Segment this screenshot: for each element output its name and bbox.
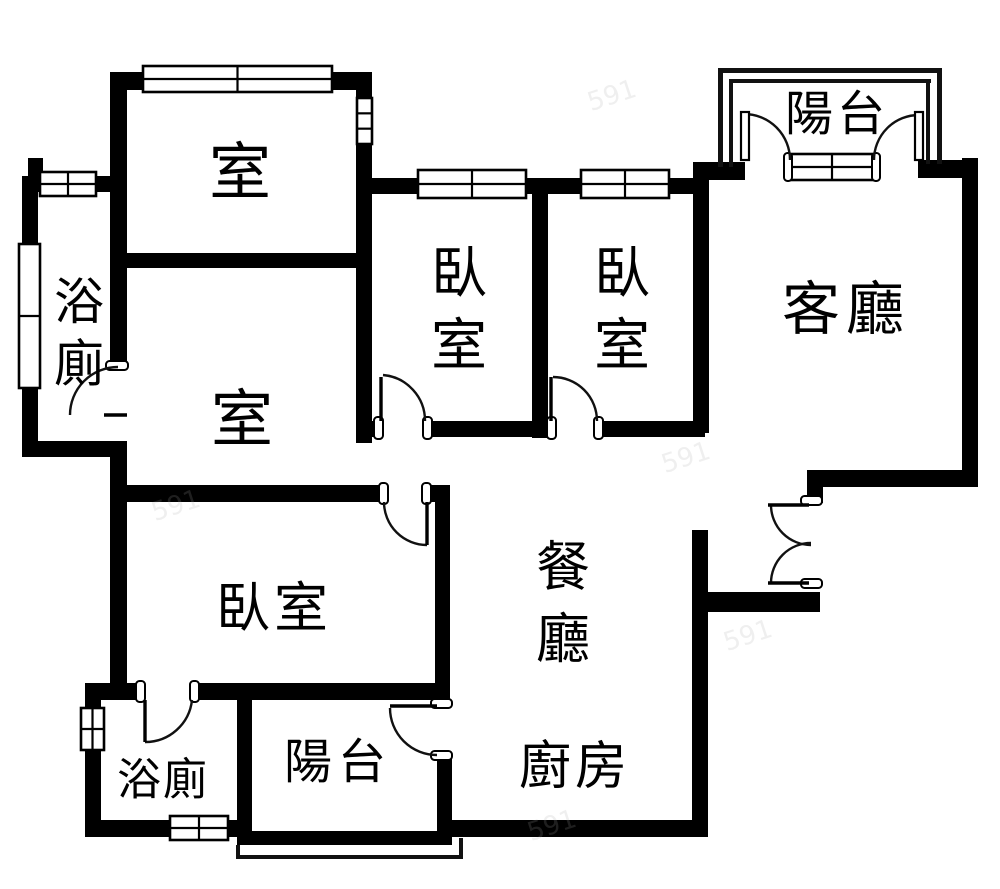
watermark: 591	[524, 804, 580, 848]
wall	[693, 162, 709, 433]
balcony-north-label: 陽台	[785, 86, 889, 142]
door-swing-arc	[390, 708, 437, 755]
dining-room-label: 餐	[536, 536, 590, 599]
watermark: 591	[658, 436, 714, 480]
door-swing-arc	[384, 502, 427, 545]
balcony-railing	[718, 68, 942, 73]
balcony-south-label: 陽台	[284, 734, 392, 790]
wall	[85, 683, 101, 710]
wall	[195, 683, 448, 700]
watermark: 591	[584, 74, 640, 118]
bathroom-upper-label: 浴	[54, 273, 104, 331]
balcony-railing	[937, 68, 942, 164]
door-swing-arc	[771, 543, 811, 583]
door-swing-arc	[553, 377, 597, 421]
door-jamb-cap	[594, 417, 603, 439]
wall	[692, 530, 708, 837]
balcony-railing	[236, 855, 463, 859]
bedroom-3-label: 臥室	[216, 577, 332, 640]
wall	[705, 592, 820, 612]
french-door-leaf	[741, 112, 749, 160]
wall	[807, 470, 978, 487]
door-jamb-cap	[379, 483, 388, 504]
wall	[532, 178, 548, 438]
french-door-leaf	[915, 112, 923, 160]
wall	[110, 443, 127, 687]
wall	[425, 421, 553, 437]
bathroom-upper-label: 廁	[54, 335, 104, 393]
room-north-label: 室	[209, 136, 271, 209]
bedroom-2-label: 室	[594, 314, 650, 379]
bathroom-lower-label: 浴廁	[117, 755, 209, 806]
floor-plan-canvas: 室浴廁臥室臥室客廳陽台室臥室餐廳廚房浴廁陽台591591591591591	[0, 0, 1000, 889]
wall	[22, 441, 127, 457]
living-room-label: 客廳	[782, 275, 910, 343]
wall	[22, 176, 38, 248]
dining-room-label: 廳	[536, 608, 590, 671]
wall	[597, 421, 705, 437]
bedroom-1-label: 臥	[431, 242, 487, 307]
wall	[435, 502, 450, 700]
wall	[962, 158, 978, 487]
wall	[356, 142, 372, 443]
window	[357, 98, 372, 144]
door-swing-arc	[145, 700, 192, 742]
wall	[110, 253, 372, 268]
balcony-railing	[729, 79, 931, 83]
balcony-railing	[718, 68, 723, 167]
door-swing-arc	[744, 114, 790, 160]
bedroom-2-label: 臥	[594, 242, 650, 307]
wall	[237, 698, 252, 845]
door-swing-arc	[383, 375, 425, 421]
door-jamb-cap	[190, 681, 199, 702]
balcony-railing	[729, 79, 733, 167]
room-middle-label: 室	[211, 383, 273, 456]
wall	[110, 72, 127, 366]
floor-plan-svg: 室浴廁臥室臥室客廳陽台室臥室餐廳廚房浴廁陽台591591591591591	[0, 0, 1000, 889]
wall	[237, 831, 452, 845]
bedroom-1-label: 室	[431, 314, 487, 379]
door-jamb-cap	[136, 681, 145, 702]
balcony-railing	[459, 838, 463, 859]
balcony-railing	[926, 79, 930, 164]
door-jamb-cap	[422, 483, 431, 504]
kitchen-label: 廚房	[519, 737, 631, 797]
door-swing-arc	[771, 505, 811, 545]
watermark: 591	[720, 614, 776, 658]
